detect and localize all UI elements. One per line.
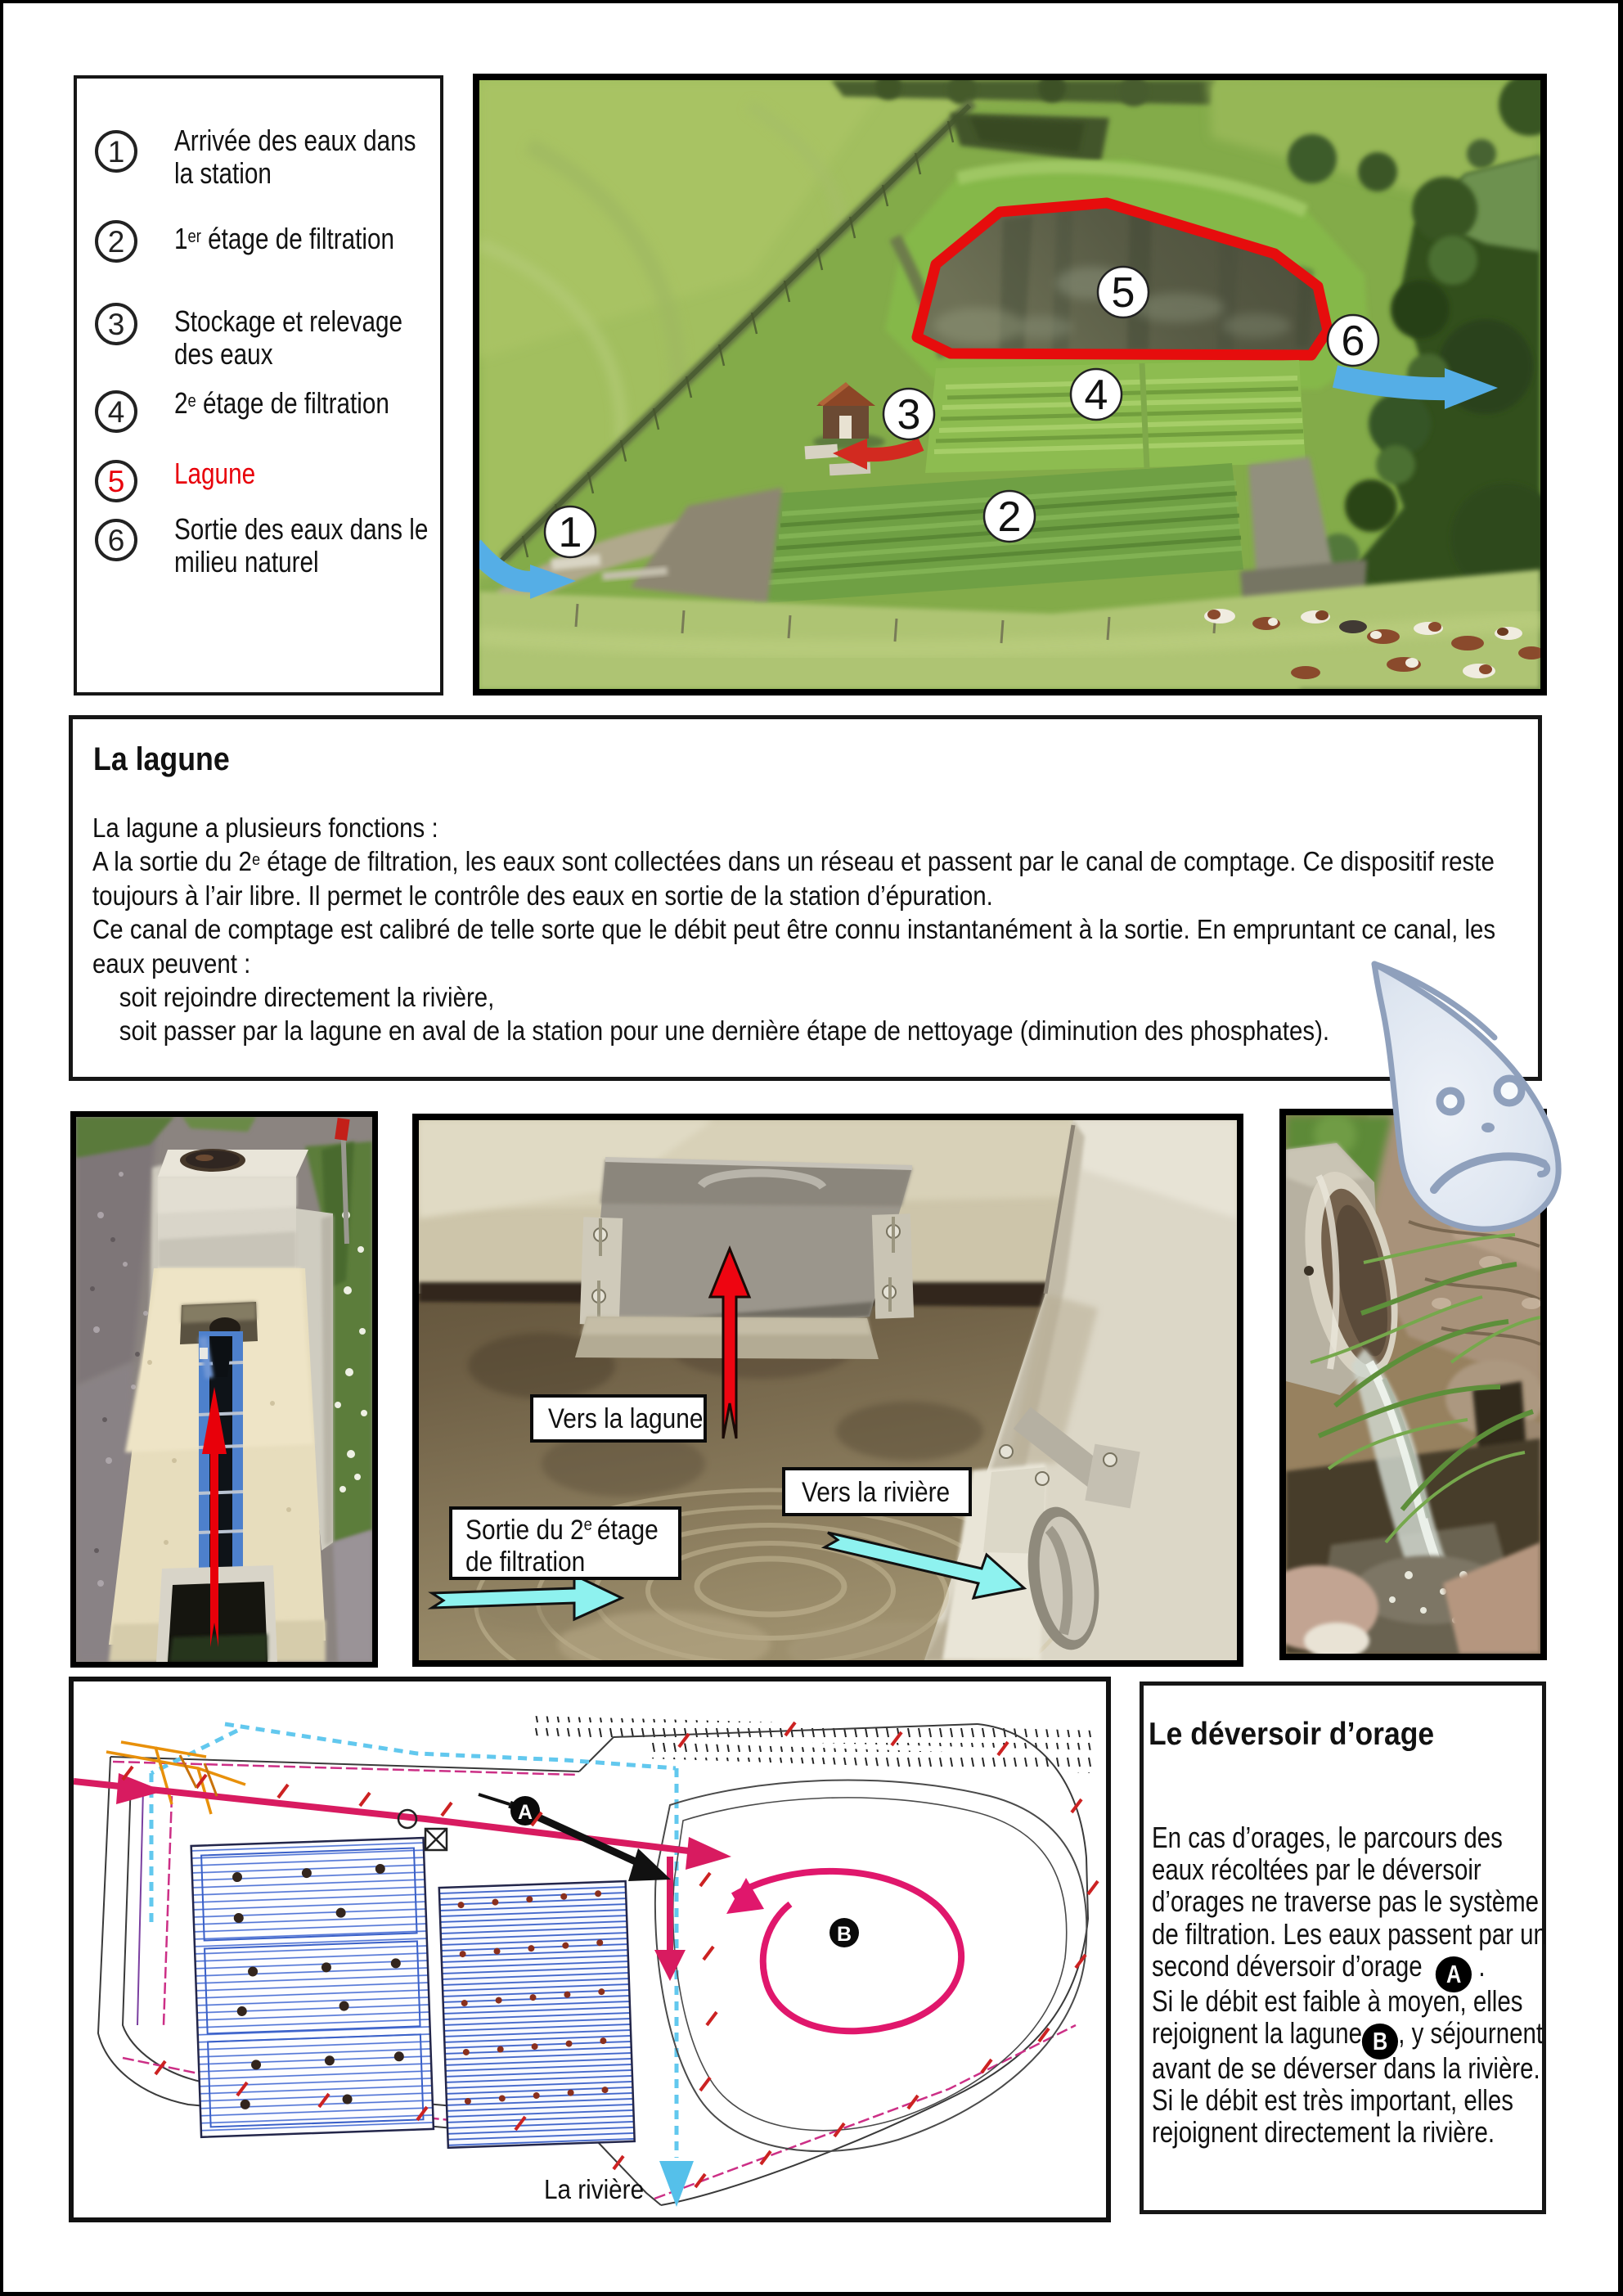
svg-text:2: 2 — [998, 493, 1022, 541]
svg-text:de filtration: de filtration — [465, 1546, 585, 1577]
svg-text:B: B — [837, 1923, 852, 1946]
svg-text:3: 3 — [897, 391, 921, 439]
svg-text:La rivière: La rivière — [544, 2175, 644, 2205]
svg-text:Vers la rivière: Vers la rivière — [802, 1476, 950, 1507]
svg-text:6: 6 — [1342, 317, 1365, 365]
svg-text:4: 4 — [1085, 371, 1108, 419]
svg-text:Sortie du 2e étage: Sortie du 2e étage — [465, 1514, 659, 1545]
svg-text:1: 1 — [559, 509, 582, 556]
svg-text:5: 5 — [1112, 269, 1135, 317]
svg-text:Vers la lagune: Vers la lagune — [548, 1402, 704, 1434]
svg-text:A: A — [518, 1801, 533, 1824]
